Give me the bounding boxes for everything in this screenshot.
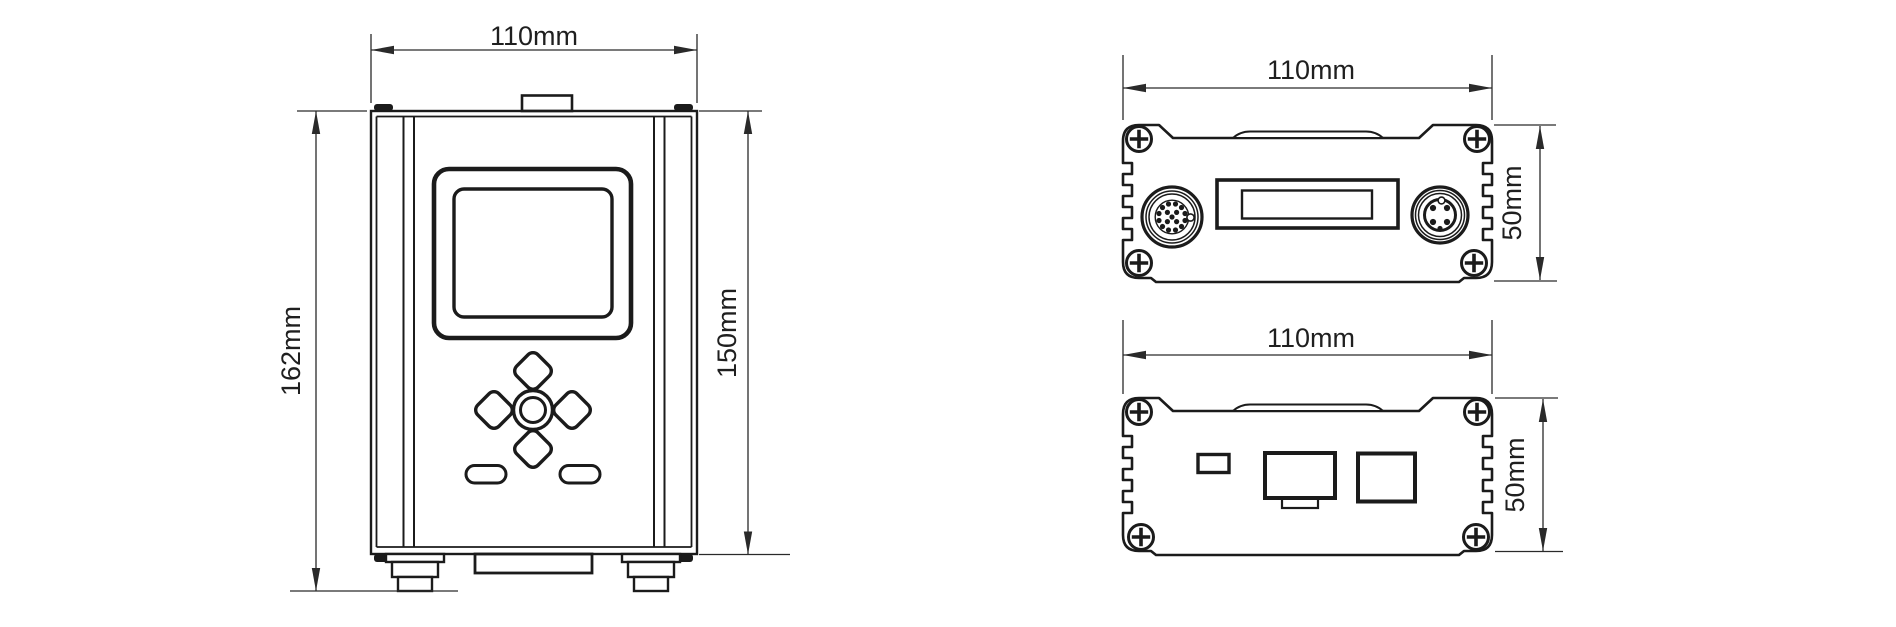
dimension-drawing: 110mm 162mm 150mm (0, 0, 1896, 627)
corner-screw-icon (1465, 127, 1490, 152)
front-width-label: 110mm (490, 21, 578, 51)
front-overall-height-dimension: 162mm (276, 111, 458, 591)
foot-connector-left (386, 554, 444, 591)
front-panel-height-dimension: 150mm (699, 111, 790, 555)
corner-screw-icon (1127, 400, 1152, 425)
panel-outline (1123, 125, 1492, 282)
function-button-right (560, 466, 600, 484)
corner-screw-icon (1465, 400, 1490, 425)
bottom-width-label: 110mm (1267, 323, 1355, 353)
bottom-width-dimension: 110mm (1123, 320, 1492, 394)
dpad-down-button (512, 428, 554, 470)
corner-screw-icon (1462, 251, 1487, 276)
rear-panel-view: 110mm 50mm (1123, 55, 1557, 282)
front-overall-height-label: 162mm (276, 306, 306, 396)
top-ear-left (374, 104, 393, 111)
function-button-left (466, 466, 506, 484)
dpad (473, 350, 593, 470)
front-width-dimension: 110mm (371, 21, 697, 103)
corner-screw-icon (1129, 525, 1154, 550)
bottom-height-label: 50mm (1500, 437, 1530, 512)
rear-height-label: 50mm (1497, 165, 1527, 240)
connector-keying-notch (1187, 214, 1194, 221)
panel-outline (1123, 398, 1492, 555)
top-ear-right (674, 104, 693, 111)
mounting-rail-left (404, 117, 415, 548)
rear-width-label: 110mm (1267, 55, 1355, 85)
dpad-right-button (551, 389, 593, 431)
dpad-left-button (473, 389, 515, 431)
bottom-panel-view: 110mm 50mm (1123, 320, 1563, 555)
technical-drawing-page: 110mm 162mm 150mm (0, 0, 1896, 627)
rear-height-dimension: 50mm (1494, 125, 1557, 281)
dpad-up-button (512, 350, 554, 392)
device-body-inner-edge (377, 117, 692, 548)
device-body (371, 111, 697, 554)
top-tab (522, 96, 572, 112)
corner-screw-icon (1127, 127, 1152, 152)
display-bezel (434, 169, 631, 338)
front-panel-height-label: 150mm (712, 288, 742, 378)
bottom-recess (475, 554, 592, 573)
bottom-height-dimension: 50mm (1495, 398, 1563, 552)
connector-keying-notch (1438, 197, 1445, 204)
rear-width-dimension: 110mm (1123, 55, 1492, 120)
front-view: 110mm 162mm 150mm (276, 21, 790, 591)
mounting-rail-right (654, 117, 665, 548)
corner-screw-icon (1464, 525, 1489, 550)
foot-connector-right (622, 554, 680, 591)
corner-screw-icon (1127, 251, 1152, 276)
display-screen (454, 189, 612, 317)
